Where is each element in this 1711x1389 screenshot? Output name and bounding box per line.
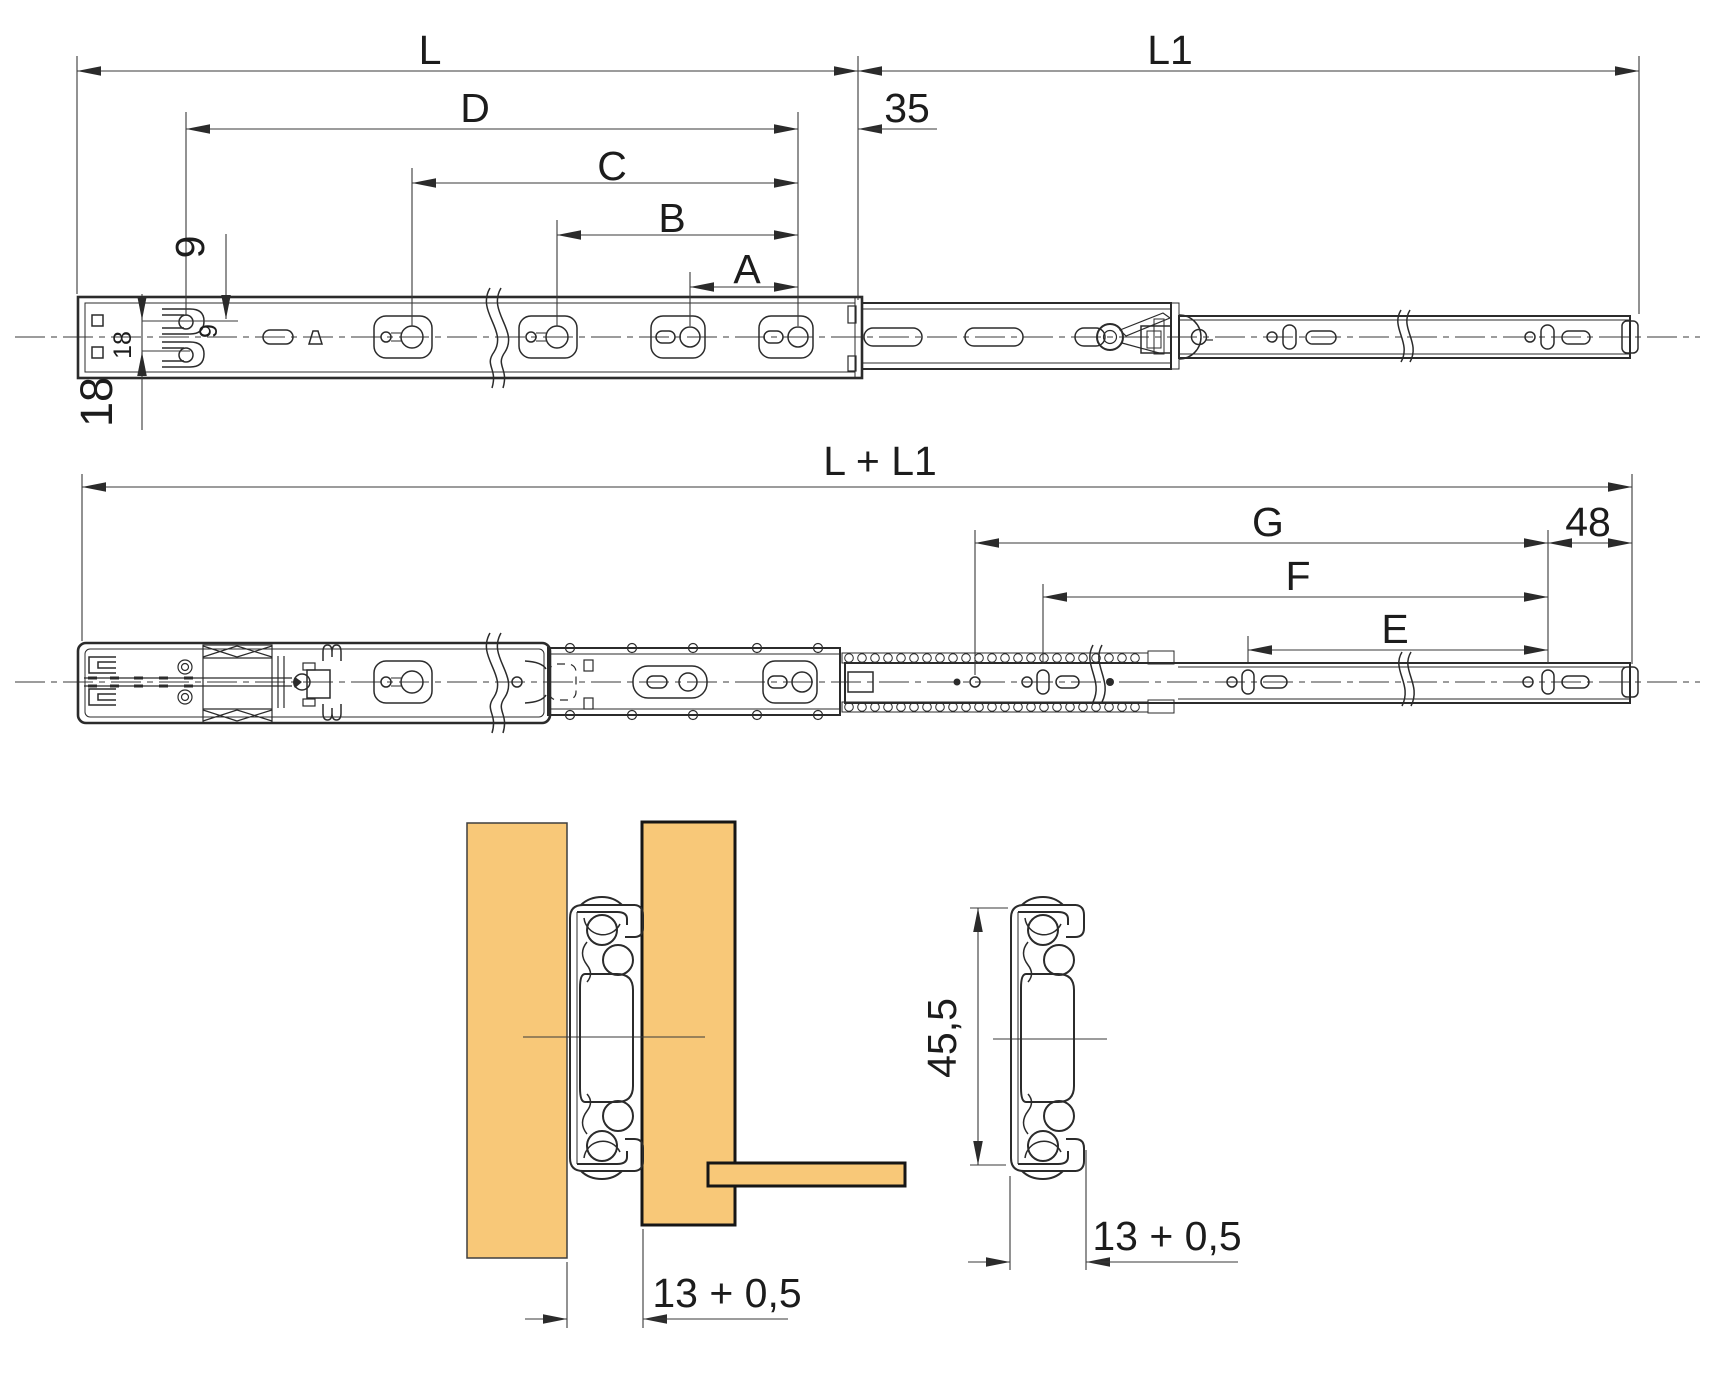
dim-label-18-inner: 18: [109, 331, 137, 359]
dim-label-gap-left: 13 + 0,5: [652, 1270, 801, 1316]
dim-label-48: 48: [1565, 499, 1611, 545]
profile-dimensions: 45,5 13 + 0,5: [919, 908, 1242, 1270]
dim-label-L1: L1: [1147, 27, 1193, 73]
dim-label-B: B: [658, 195, 685, 241]
slide-cross-section-mounted: [570, 897, 643, 1179]
dim-label-gap-right: 13 + 0,5: [1092, 1213, 1241, 1259]
profile-section-view: 45,5 13 + 0,5: [919, 897, 1242, 1270]
dim-label-D: D: [460, 85, 490, 131]
dim-label-height: 45,5: [919, 998, 965, 1078]
slide-cross-section-profile: [1011, 897, 1084, 1179]
dim-label-35: 35: [884, 85, 930, 131]
latch-end-plate: [1171, 303, 1179, 369]
dim-label-C: C: [597, 143, 627, 189]
drawing-canvas: L L1 D 35 C B A 9 9 18 18: [0, 0, 1711, 1389]
dim-label-G: G: [1252, 499, 1284, 545]
cabinet-member-extended: [78, 633, 576, 733]
intermediate-member-closed: [862, 303, 1171, 369]
installation-section-view: 13 + 0,5: [467, 822, 905, 1328]
drawer-member-closed: [1179, 310, 1638, 362]
dim-label-total: L + L1: [823, 438, 937, 484]
extended-slide-view: L + L1 G 48 F E: [15, 438, 1700, 733]
rear-square-hole-top: [92, 315, 103, 326]
cabinet-side-panel: [467, 823, 567, 1258]
dim-label-F: F: [1285, 553, 1310, 599]
drawer-bottom-panel: [708, 1163, 905, 1186]
extended-view-dimensions: L + L1 G 48 F E: [82, 438, 1632, 675]
closed-slide-view: L L1 D 35 C B A 9 9 18 18: [15, 27, 1700, 430]
front-latch-mechanism: [1097, 303, 1213, 369]
dim-label-9-inner: 9: [195, 324, 223, 338]
dim-label-9: 9: [167, 236, 213, 259]
dim-label-L: L: [419, 27, 442, 73]
drawer-slide-technical-drawing: L L1 D 35 C B A 9 9 18 18: [0, 0, 1711, 1389]
dim-label-18: 18: [71, 377, 122, 427]
dim-label-A: A: [733, 246, 761, 292]
dim-label-E: E: [1381, 606, 1408, 652]
break-line: [1399, 652, 1414, 706]
rear-square-hole-bottom: [92, 347, 103, 358]
